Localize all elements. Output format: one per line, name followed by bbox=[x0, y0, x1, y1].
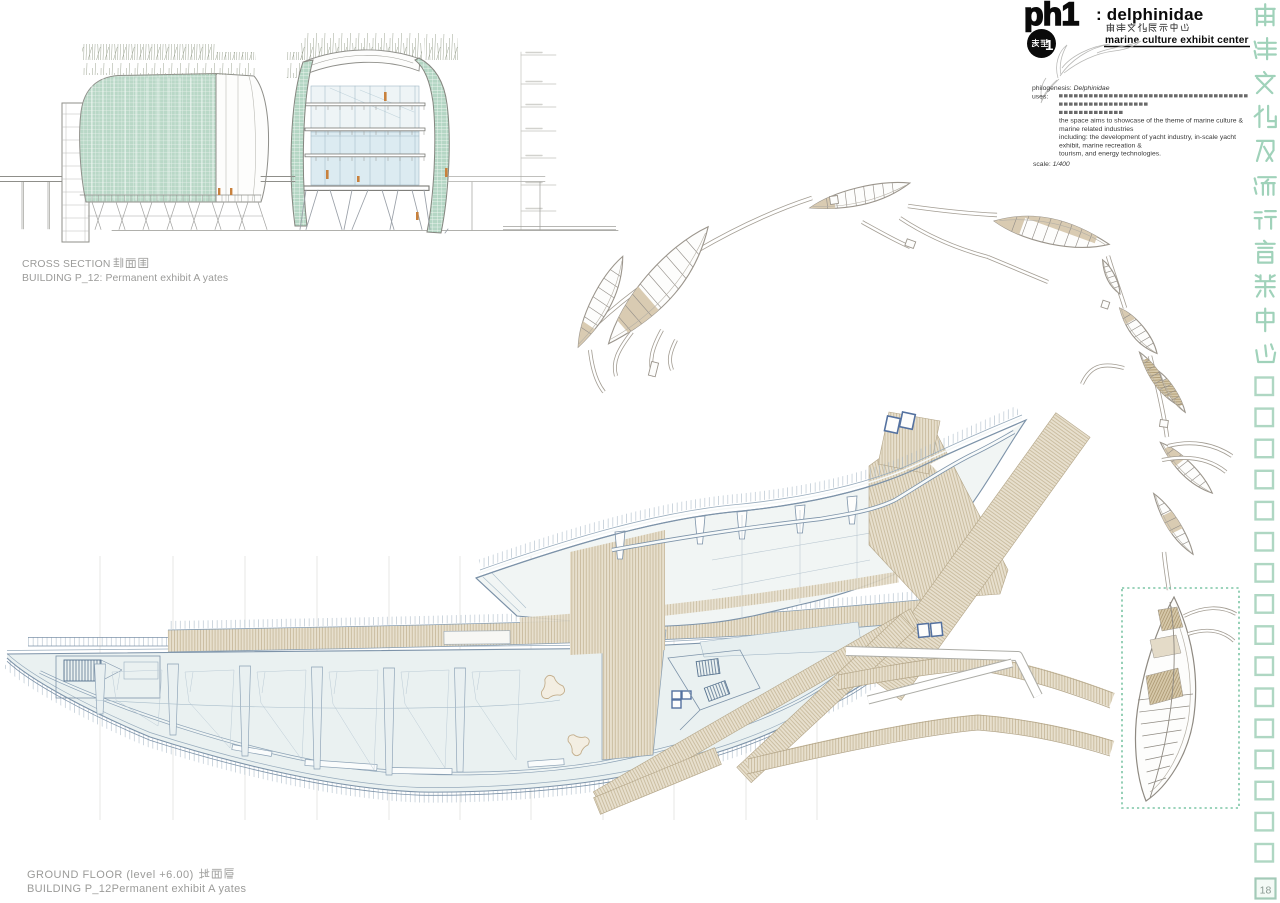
svg-text:marine culture exhibit center: marine culture exhibit center bbox=[1105, 35, 1249, 46]
svg-text:: delphinidae: : delphinidae bbox=[1096, 5, 1203, 24]
svg-text:the space aims to showcase of: the space aims to showcase of the theme … bbox=[1059, 118, 1243, 125]
svg-text:uses:: uses: bbox=[1032, 94, 1048, 101]
svg-text:CROSS SECTION: CROSS SECTION bbox=[22, 259, 111, 270]
svg-text:including: the development of: including: the development of yacht indu… bbox=[1059, 134, 1236, 141]
svg-text:BUILDING P_12: Permanent exhib: BUILDING P_12: Permanent exhibit A yates bbox=[22, 273, 228, 284]
svg-text:exhibit, marine recreation &: exhibit, marine recreation & bbox=[1059, 142, 1142, 149]
svg-text:18: 18 bbox=[1260, 885, 1272, 897]
svg-text:BUILDING P_12Permanent exhibit: BUILDING P_12Permanent exhibit A yates bbox=[27, 883, 246, 895]
svg-text:philogenesis: Delphinidae: philogenesis: Delphinidae bbox=[1032, 85, 1110, 92]
svg-text:ph1: ph1 bbox=[1024, 0, 1079, 32]
svg-text:scale: 1/400: scale: 1/400 bbox=[1033, 161, 1070, 168]
svg-text:1: 1 bbox=[1045, 37, 1053, 54]
svg-text:tourism, and energy technologi: tourism, and energy technologies. bbox=[1059, 151, 1161, 158]
svg-text:GROUND FLOOR (level +6.00): GROUND FLOOR (level +6.00) bbox=[27, 869, 194, 881]
svg-text:marine related industries: marine related industries bbox=[1059, 126, 1134, 133]
